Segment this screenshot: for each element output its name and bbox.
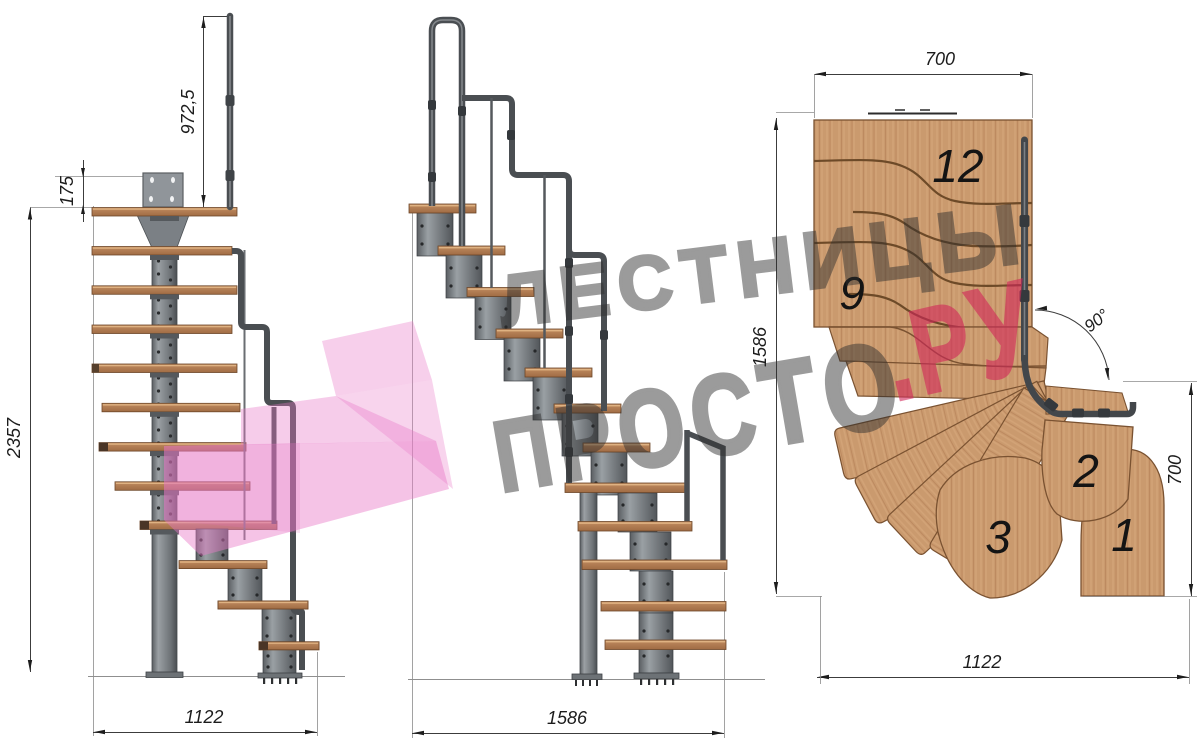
svg-text:1: 1 <box>1111 509 1137 561</box>
svg-text:2357: 2357 <box>4 417 24 459</box>
svg-text:1122: 1122 <box>963 652 1002 672</box>
svg-text:700: 700 <box>925 49 955 69</box>
svg-text:972,5: 972,5 <box>178 88 198 134</box>
svg-text:3: 3 <box>985 511 1011 563</box>
svg-text:2: 2 <box>1072 445 1099 497</box>
svg-text:175: 175 <box>57 175 77 206</box>
svg-text:700: 700 <box>1165 455 1185 485</box>
svg-text:12: 12 <box>932 140 983 192</box>
svg-text:1122: 1122 <box>185 707 224 727</box>
svg-text:1586: 1586 <box>547 708 588 728</box>
